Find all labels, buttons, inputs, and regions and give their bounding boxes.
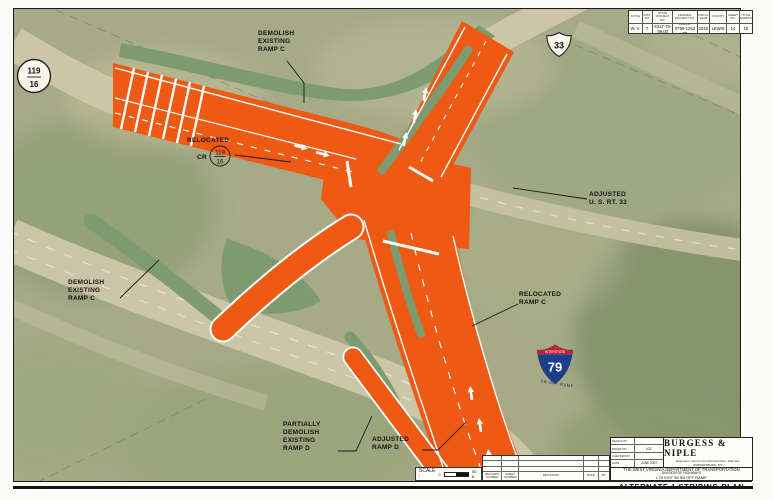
design-by-label: DESIGN BY (611, 438, 635, 444)
drawn-by-label: DRAWN BY (611, 445, 635, 451)
checked-by-label: CHECKED BY (611, 453, 635, 459)
col-header: TOTAL SHEETS (740, 11, 752, 24)
col-header: STATE PROJECT NO. (653, 11, 673, 24)
project-info-table: STATE W. V. DIST. NO. 7 STATE PROJECT NO… (628, 10, 753, 34)
date-label: DATE (611, 460, 635, 466)
county-route-shield: 119 16 (18, 60, 51, 93)
credits-table: DESIGN BY DRAWN BY LGC CHECKED BY DATE J… (611, 438, 664, 467)
interstate-banner-text: INTERSTATE (545, 350, 566, 354)
revision-table: REVISION NUMBER SHEET NUMBER REVISIONS D… (482, 455, 610, 481)
project-col-sheet-no: SHEET NO. 14 (727, 11, 740, 33)
scale-label: SCALE : (419, 468, 435, 480)
date-value: JUNE 2007 (635, 460, 663, 466)
label-partially-demolish-existing-ramp-d: PARTIALLY DEMOLISH EXISTING RAMP D (283, 421, 321, 454)
project-col-state-project: STATE PROJECT NO. S317-79-99.00 (653, 11, 674, 33)
col-header: COUNTY (710, 11, 726, 24)
col-value: 15 (740, 24, 752, 33)
col-value: 2018 (698, 24, 710, 33)
plan-sheet: { "drawing_labels": { "demolish_existing… (0, 0, 773, 500)
col-value: W. V. (629, 24, 642, 33)
project-col-fiscal-year: FISCAL YEAR 2018 (698, 11, 711, 33)
scale-end: 50 ft (472, 469, 478, 479)
revision-header: SHEET NUMBER (502, 472, 519, 480)
relocated-text: RELOCATED (187, 137, 229, 144)
scale-start: 0 (438, 472, 440, 477)
checked-by-value (635, 453, 663, 459)
checked-by-row: CHECKED BY (611, 453, 663, 460)
col-value: S317-79-99.00 (653, 24, 673, 33)
firm-location: PARKERSBURG, WV (693, 463, 722, 467)
revision-header: DATE (584, 472, 600, 480)
label-demolish-existing-ramp-c-left: DEMOLISH EXISTING RAMP C (68, 279, 104, 303)
firm-name: BURGESS & NIPLE (664, 438, 752, 458)
date-row: DATE JUNE 2007 (611, 460, 663, 466)
col-value: 14 (727, 24, 739, 33)
scale-graphic (444, 472, 469, 477)
col-value: 7 (643, 24, 652, 33)
project-col-county: COUNTY LEWIS (710, 11, 727, 33)
interstate-number: 79 (548, 360, 562, 375)
drawing-frame: 119 16 33 RELOCATED CR 119 16 INTERSTATE… (13, 8, 741, 482)
revision-header: REVISIONS (519, 472, 583, 480)
title-block-top-row: DESIGN BY DRAWN BY LGC CHECKED BY DATE J… (611, 438, 752, 468)
project-col-total-sheets: TOTAL SHEETS 15 (740, 11, 752, 33)
inline-route-bottom: 16 (217, 160, 224, 166)
col-header: DIST. NO. (643, 11, 652, 24)
col-header: SHEET NO. (727, 11, 739, 24)
col-header: STATE (629, 11, 642, 24)
revision-header: BY (599, 472, 609, 480)
sheet-border-line (13, 486, 753, 489)
project-col-district: DIST. NO. 7 (643, 11, 653, 33)
project-name: I-79 EXIT 99 SB OFF RAMP (656, 476, 707, 481)
striping-plan-drawing: 119 16 33 RELOCATED CR 119 16 INTERSTATE… (14, 9, 741, 482)
col-value: LEWIS (710, 24, 726, 33)
label-relocated-ramp-c: RELOCATED RAMP C (519, 291, 561, 307)
project-col-federal-project: FEDERAL PROJECT NO. 99999-0799-1253 00 (673, 11, 697, 33)
label-adjusted-us-rt-33: ADJUSTED U. S. RT. 33 (589, 191, 627, 207)
revision-header: REVISION NUMBER (483, 472, 502, 480)
col-header: FEDERAL PROJECT NO. (673, 11, 696, 24)
inline-route-top: 119 (215, 151, 225, 157)
drawn-by-value: LGC (635, 445, 663, 451)
project-col-state: STATE W. V. (629, 11, 643, 33)
county-route-number-bottom: 16 (30, 80, 39, 89)
label-demolish-existing-ramp-c-top: DEMOLISH EXISTING RAMP C (258, 30, 294, 54)
col-header: FISCAL YEAR (698, 11, 710, 24)
label-adjusted-ramp-d: ADJUSTED RAMP D (372, 436, 409, 452)
col-value: 99999-0799-1253 00 (673, 24, 696, 33)
county-route-number-top: 119 (28, 67, 41, 76)
us-route-33-number: 33 (554, 41, 564, 51)
revision-header-row: REVISION NUMBER SHEET NUMBER REVISIONS D… (483, 472, 609, 480)
drawn-by-row: DRAWN BY LGC (611, 445, 663, 452)
firm-identity: BURGESS & NIPLE Engineers • Environmenta… (664, 438, 752, 467)
title-block: DESIGN BY DRAWN BY LGC CHECKED BY DATE J… (610, 437, 753, 481)
design-by-value (635, 438, 663, 444)
scale-bar: SCALE : 0 50 ft (415, 467, 482, 481)
design-by-row: DESIGN BY (611, 438, 663, 445)
agency-block: THE WEST VIRGINIA DEPARTMENT OF TRANSPOR… (611, 468, 752, 482)
cr-text: CR (197, 154, 207, 161)
